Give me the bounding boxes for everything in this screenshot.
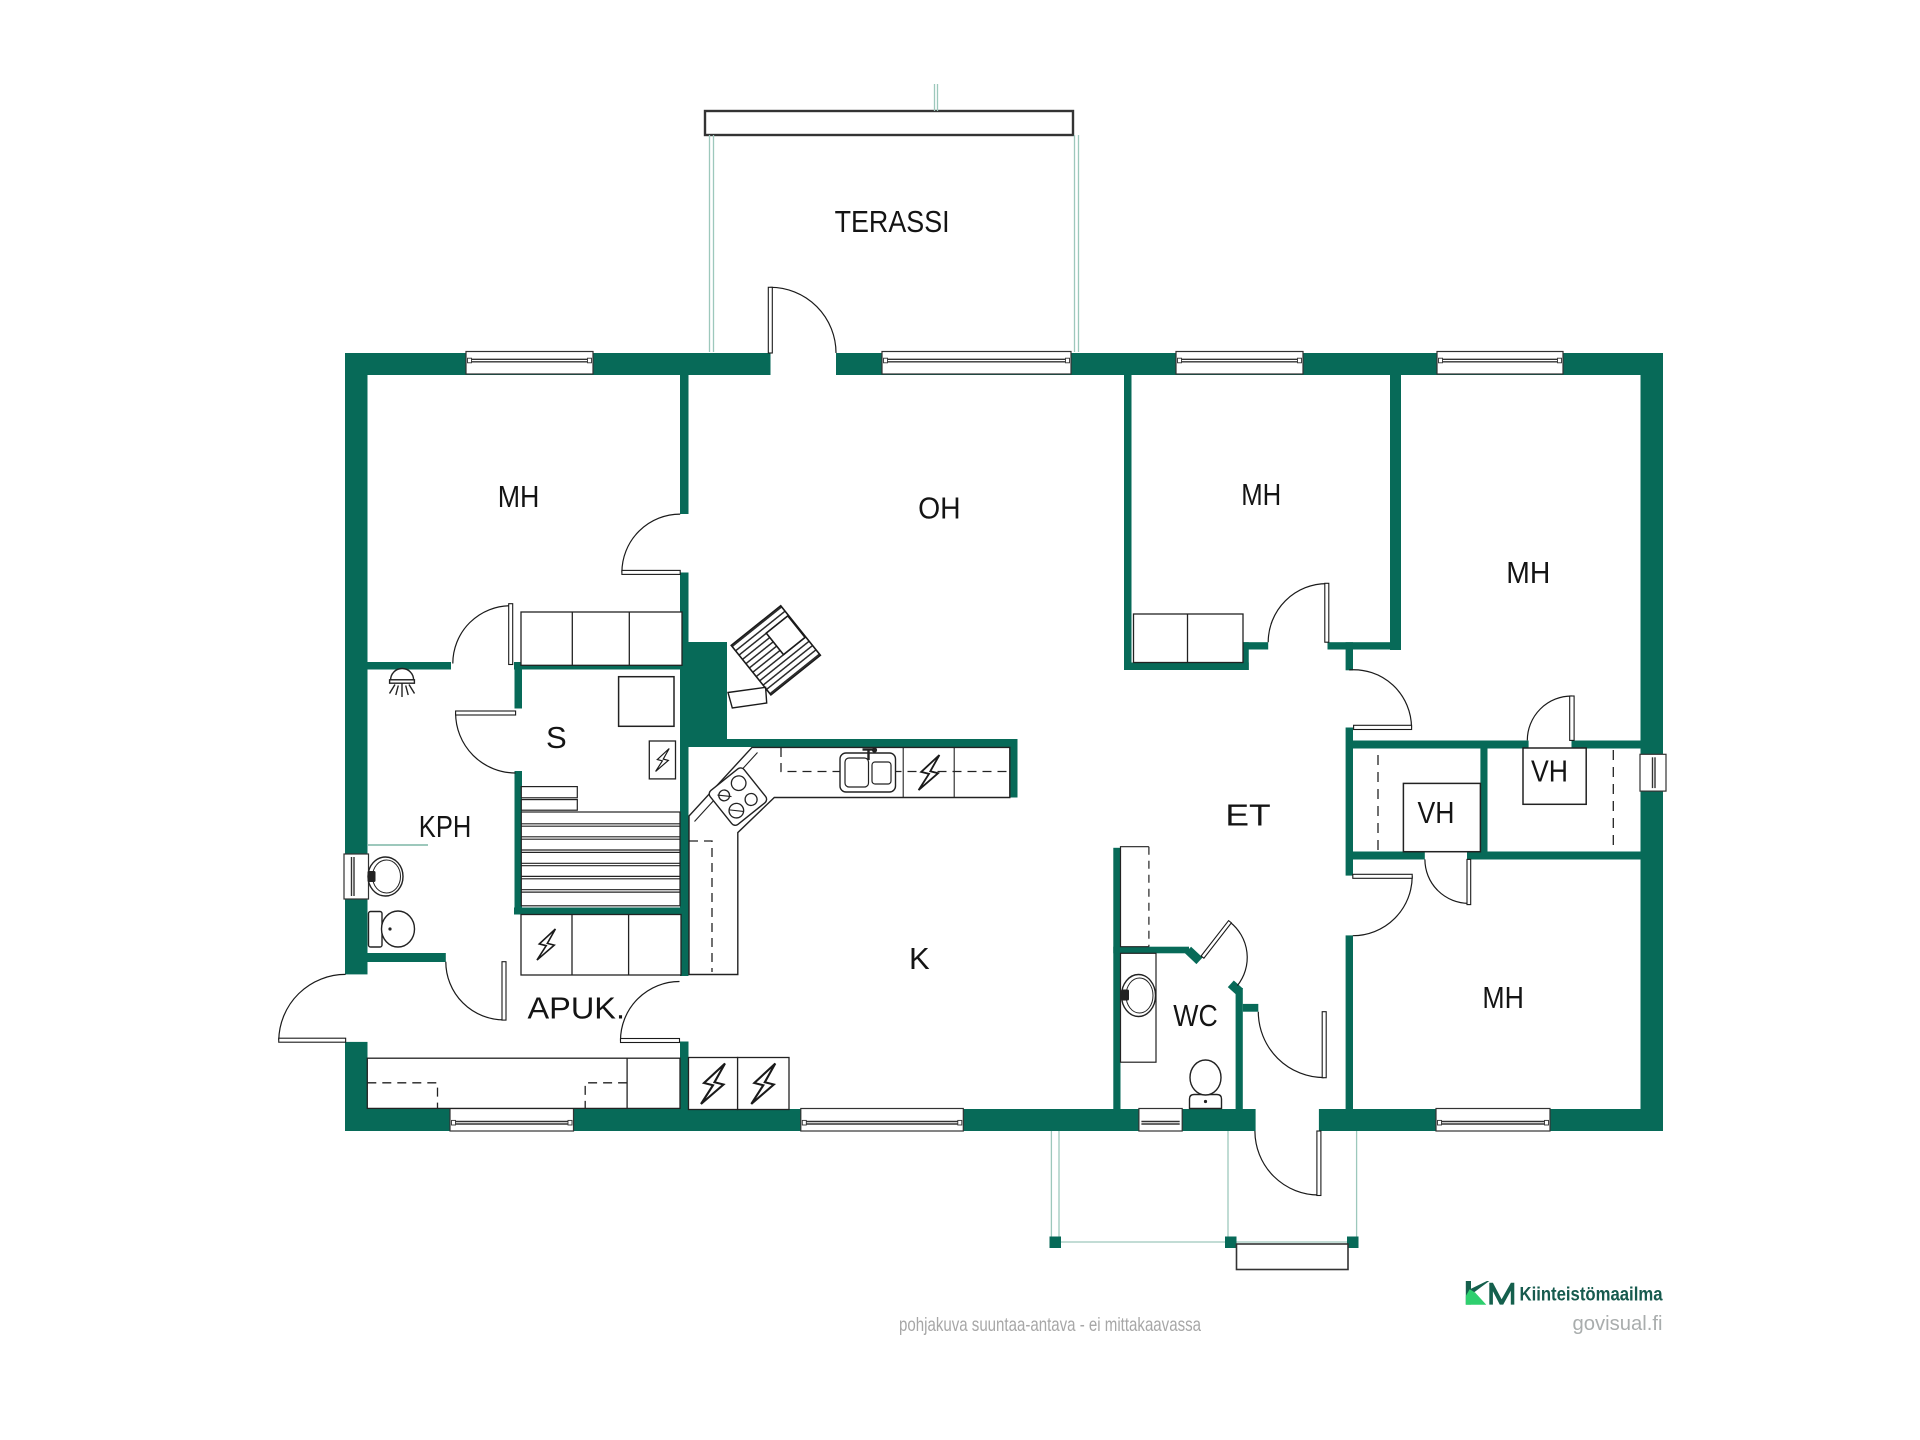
svg-text:MH: MH	[498, 479, 540, 514]
svg-text:TERASSI: TERASSI	[835, 204, 950, 239]
svg-text:VH: VH	[1531, 753, 1568, 788]
svg-text:KPH: KPH	[419, 809, 472, 844]
svg-text:OH: OH	[918, 491, 961, 526]
svg-text:pohjakuva suuntaa-antava - ei: pohjakuva suuntaa-antava - ei mittakaava…	[899, 1314, 1201, 1336]
svg-text:K: K	[909, 941, 930, 976]
svg-text:S: S	[546, 720, 567, 755]
svg-text:MH: MH	[1482, 980, 1524, 1015]
svg-text:MH: MH	[1506, 555, 1550, 590]
svg-text:MH: MH	[1241, 477, 1281, 512]
svg-text:Kiinteistömaailma: Kiinteistömaailma	[1520, 1285, 1663, 1306]
svg-text:ET: ET	[1225, 798, 1270, 833]
svg-text:govisual.fi: govisual.fi	[1573, 1313, 1663, 1335]
svg-text:VH: VH	[1418, 795, 1455, 830]
svg-text:WC: WC	[1173, 998, 1218, 1033]
svg-text:APUK.: APUK.	[528, 990, 626, 1025]
